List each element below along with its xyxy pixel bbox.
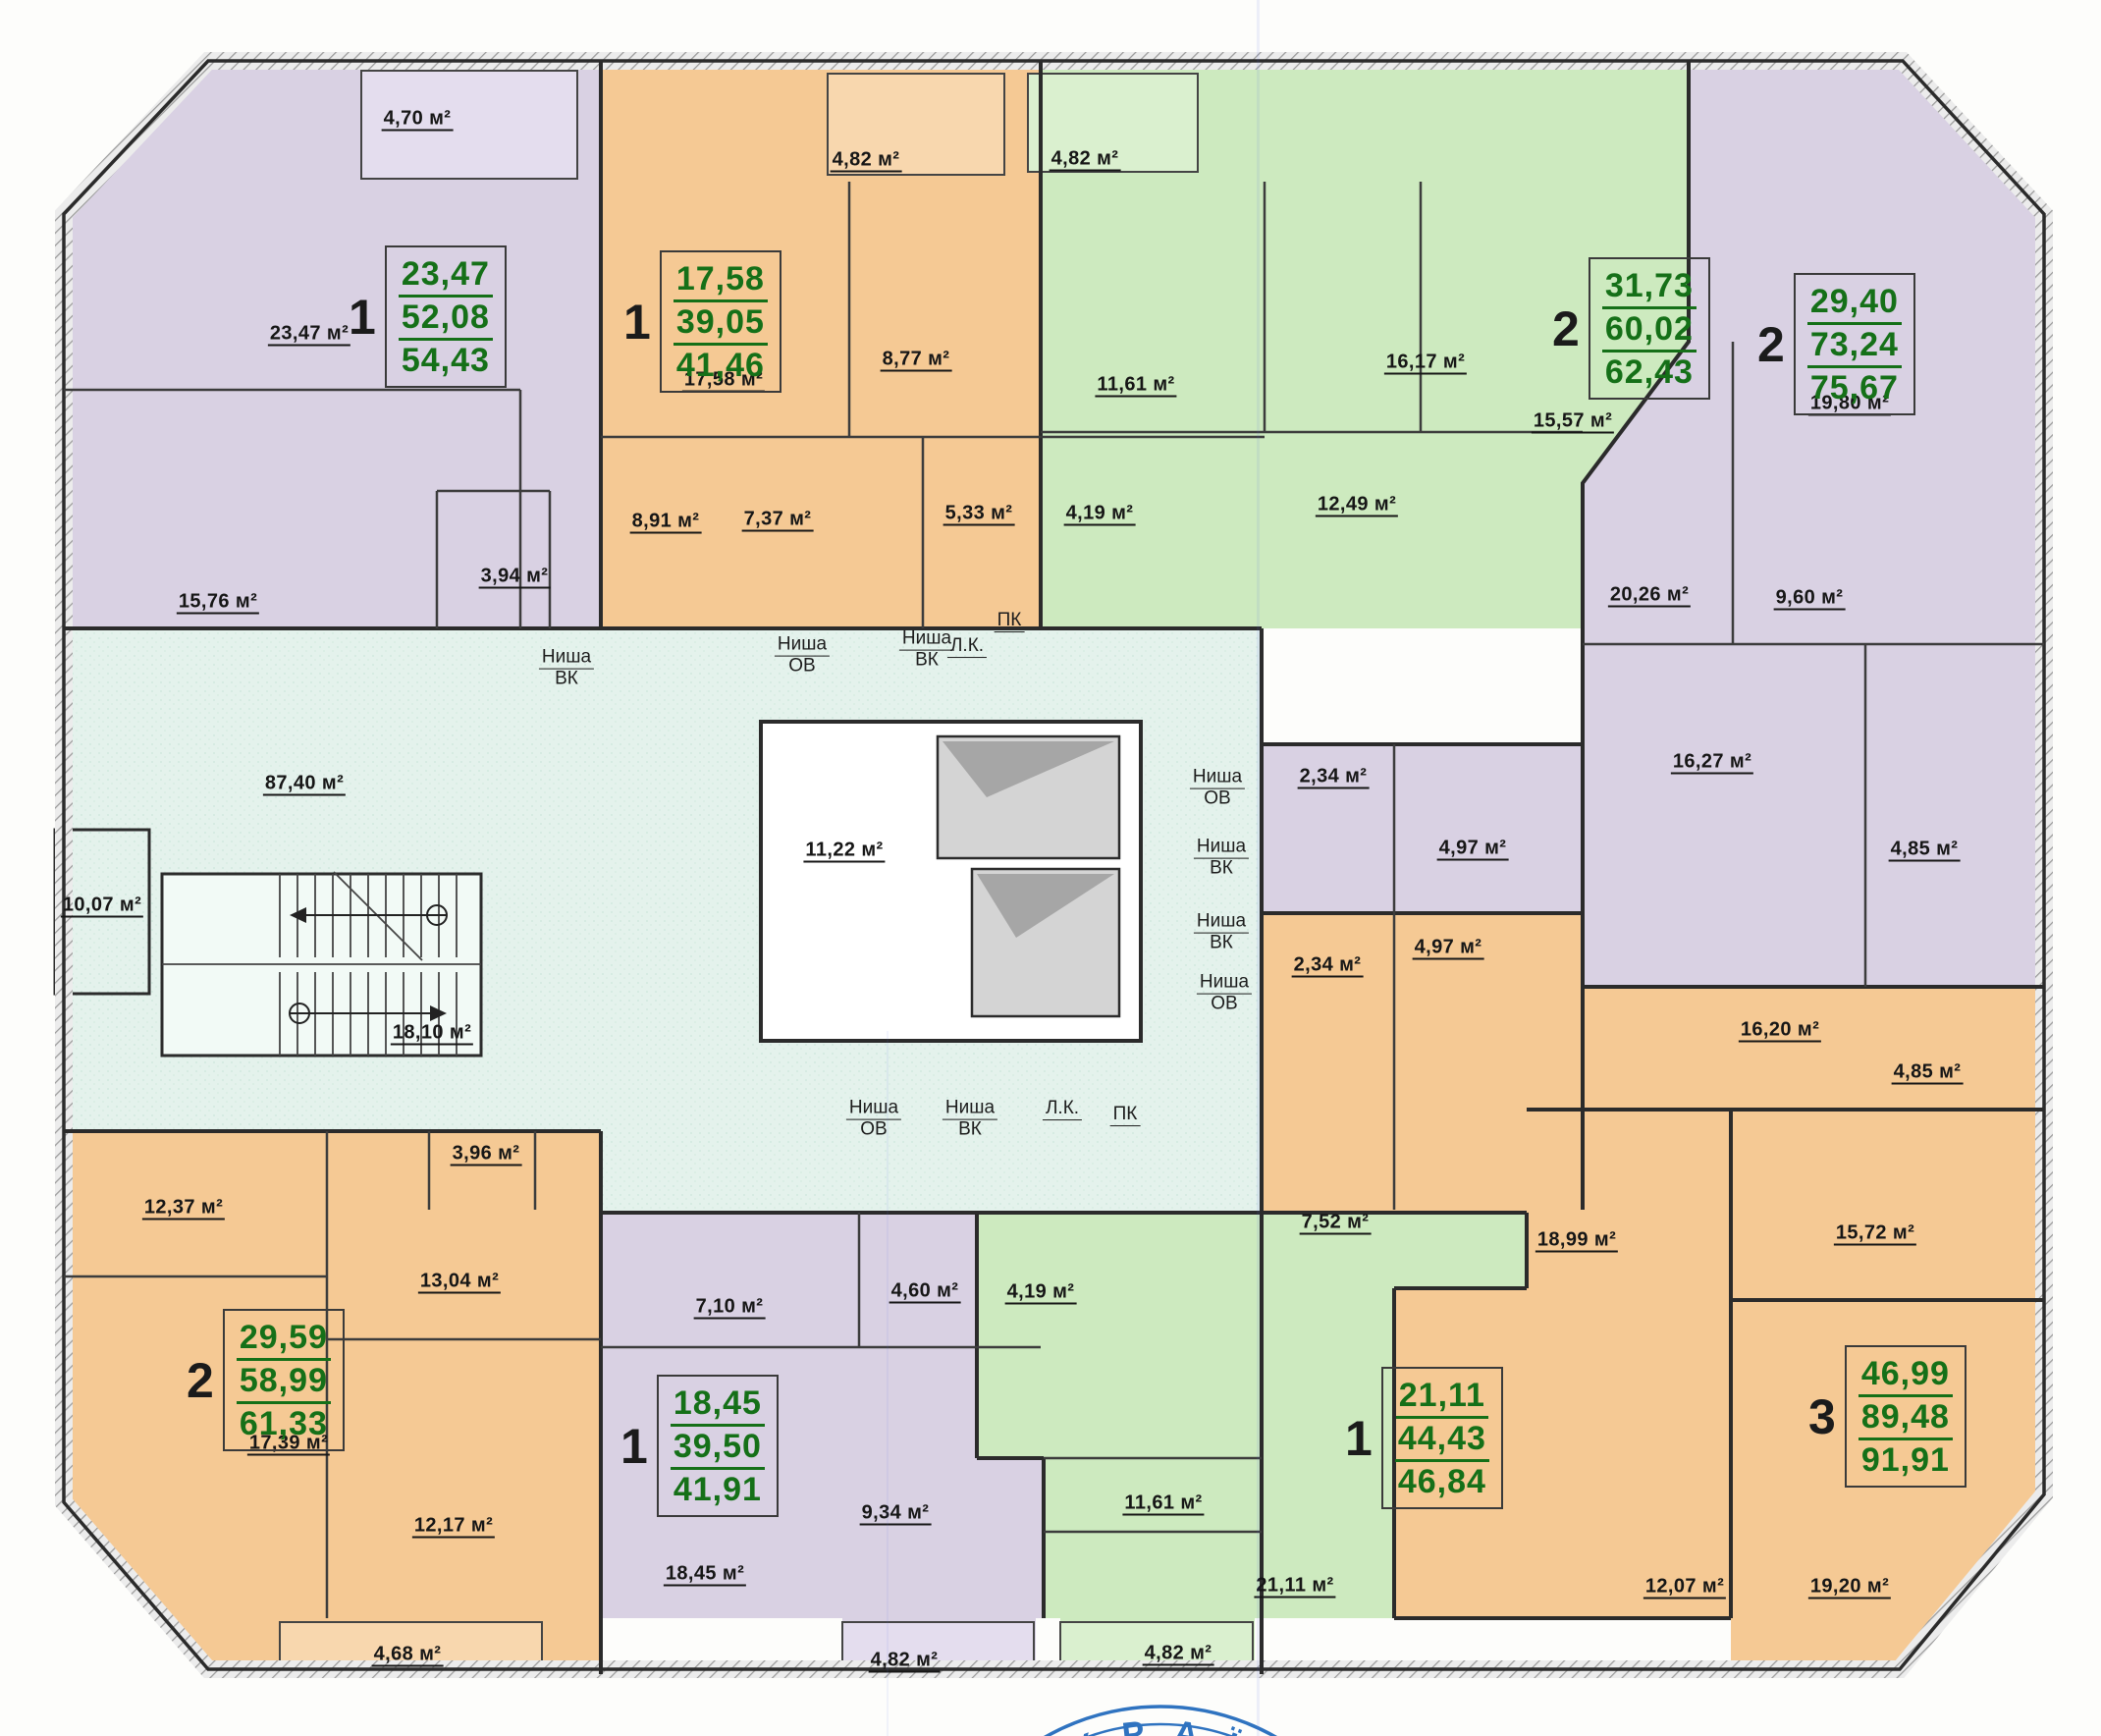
room-area-label: 87,40 м² xyxy=(263,774,346,796)
room-area-label: 12,07 м² xyxy=(1643,1577,1726,1600)
apartment-area: 58,99 xyxy=(237,1361,331,1404)
apartment-areas-box: 18,45 39,50 41,91 xyxy=(657,1375,779,1517)
room-area-label: 16,20 м² xyxy=(1739,1020,1821,1043)
living-area: 29,59 xyxy=(237,1318,331,1361)
room-area-label: 5,33 м² xyxy=(943,504,1015,526)
labels-layer: 4,70 м²23,47 м²15,76 м²3,94 м²8,91 м²17,… xyxy=(0,0,2101,1736)
apartment-areas-box: 21,11 44,43 46,84 xyxy=(1381,1367,1503,1509)
apartment-areas-box: 31,73 60,02 62,43 xyxy=(1589,257,1710,400)
niche-label: НишаВК xyxy=(1194,912,1249,954)
room-area-label: 15,57 м² xyxy=(1532,411,1614,434)
niche-label: Л.К. xyxy=(1043,1099,1082,1120)
room-area-label: 15,76 м² xyxy=(177,592,259,615)
living-area: 21,11 xyxy=(1396,1376,1488,1419)
room-area-label: 16,27 м² xyxy=(1671,752,1753,775)
room-area-label: 18,99 м² xyxy=(1535,1230,1618,1253)
apartment-rooms-count: 2 xyxy=(1757,320,1785,369)
room-area-label: 11,61 м² xyxy=(1122,1493,1204,1516)
room-area-label: 4,97 м² xyxy=(1437,839,1509,861)
room-area-label: 4,68 м² xyxy=(372,1645,444,1667)
niche-label: НишаВК xyxy=(539,648,594,690)
niche-label: НишаОВ xyxy=(1197,973,1252,1015)
room-area-label: 2,34 м² xyxy=(1292,955,1364,978)
living-area: 29,40 xyxy=(1807,282,1902,325)
apartment-info-top-left: 1 23,47 52,08 54,43 xyxy=(349,245,507,388)
room-area-label: 4,19 м² xyxy=(1005,1282,1077,1305)
floor-plan: У К Р А Ї Н 4,70 м²23,47 м²15,76 м²3,94 … xyxy=(0,0,2101,1736)
living-area: 18,45 xyxy=(671,1383,765,1427)
living-area: 17,58 xyxy=(673,259,768,302)
apartment-area: 73,24 xyxy=(1807,325,1902,368)
apartment-info-bottom-green: 1 21,11 44,43 46,84 xyxy=(1345,1367,1503,1509)
room-area-label: 19,20 м² xyxy=(1808,1577,1891,1600)
room-area-label: 4,82 м² xyxy=(1050,149,1121,172)
niche-label: ПК xyxy=(1110,1105,1141,1126)
room-area-label: 4,85 м² xyxy=(1892,1062,1964,1085)
living-area: 23,47 xyxy=(399,254,493,298)
total-area: 61,33 xyxy=(237,1404,331,1444)
niche-label: ПК xyxy=(995,611,1025,632)
room-area-label: 7,37 м² xyxy=(742,510,814,532)
room-area-label: 12,49 м² xyxy=(1316,495,1398,517)
room-area-label: 9,34 м² xyxy=(860,1503,932,1526)
total-area: 91,91 xyxy=(1859,1440,1953,1481)
niche-label: НишаВК xyxy=(943,1099,997,1141)
living-area: 31,73 xyxy=(1602,266,1697,309)
room-area-label: 4,70 м² xyxy=(382,109,454,132)
niche-label: НишаОВ xyxy=(775,635,830,678)
room-area-label: 13,04 м² xyxy=(418,1272,501,1294)
apartment-area: 60,02 xyxy=(1602,309,1697,353)
room-area-label: 8,77 м² xyxy=(881,350,952,372)
apartment-rooms-count: 1 xyxy=(623,298,651,347)
total-area: 62,43 xyxy=(1602,353,1697,393)
apartment-info-right-purple: 2 29,40 73,24 75,67 xyxy=(1757,273,1915,415)
room-area-label: 15,72 м² xyxy=(1834,1223,1916,1246)
apartment-rooms-count: 1 xyxy=(620,1422,648,1471)
apartment-rooms-count: 1 xyxy=(1345,1414,1373,1463)
room-area-label: 12,17 м² xyxy=(412,1516,495,1539)
room-area-label: 7,52 м² xyxy=(1300,1213,1372,1235)
room-area-label: 20,26 м² xyxy=(1608,585,1691,608)
living-area: 46,99 xyxy=(1859,1354,1953,1397)
apartment-area: 89,48 xyxy=(1859,1397,1953,1440)
niche-label: Л.К. xyxy=(947,636,987,658)
room-area-label: 23,47 м² xyxy=(268,324,350,347)
apartment-area: 39,50 xyxy=(671,1427,765,1470)
apartment-areas-box: 46,99 89,48 91,91 xyxy=(1845,1345,1966,1488)
apartment-rooms-count: 2 xyxy=(187,1356,214,1405)
apartment-areas-box: 23,47 52,08 54,43 xyxy=(385,245,507,388)
niche-label: НишаОВ xyxy=(1190,768,1245,810)
apartment-area: 39,05 xyxy=(673,302,768,346)
room-area-label: 11,61 м² xyxy=(1095,375,1176,398)
room-area-label: 11,22 м² xyxy=(803,841,885,863)
apartment-area: 52,08 xyxy=(399,298,493,341)
room-area-label: 2,34 м² xyxy=(1298,767,1370,789)
room-area-label: 18,10 м² xyxy=(391,1023,473,1046)
room-area-label: 8,91 м² xyxy=(630,512,702,534)
apartment-info-top-green: 2 31,73 60,02 62,43 xyxy=(1552,257,1710,400)
apartment-area: 44,43 xyxy=(1395,1419,1489,1462)
room-area-label: 4,82 м² xyxy=(869,1651,941,1673)
total-area: 54,43 xyxy=(399,341,493,381)
total-area: 75,67 xyxy=(1807,368,1902,408)
room-area-label: 18,45 м² xyxy=(664,1564,746,1587)
niche-label: НишаВК xyxy=(899,629,954,672)
apartment-info-bottom-purple: 1 18,45 39,50 41,91 xyxy=(620,1375,779,1517)
apartment-info-bottom-right-orange: 3 46,99 89,48 91,91 xyxy=(1808,1345,1966,1488)
room-area-label: 4,60 м² xyxy=(889,1281,961,1304)
niche-label: НишаВК xyxy=(1194,838,1249,880)
room-area-label: 7,10 м² xyxy=(694,1297,766,1320)
niche-label: НишаОВ xyxy=(846,1099,901,1141)
room-area-label: 12,37 м² xyxy=(142,1198,225,1221)
total-area: 41,91 xyxy=(671,1470,765,1510)
room-area-label: 21,11 м² xyxy=(1254,1576,1335,1599)
apartment-areas-box: 29,40 73,24 75,67 xyxy=(1794,273,1915,415)
total-area: 41,46 xyxy=(673,346,768,386)
room-area-label: 9,60 м² xyxy=(1774,588,1846,611)
apartment-rooms-count: 3 xyxy=(1808,1392,1836,1441)
apartment-info-top-orange: 1 17,58 39,05 41,46 xyxy=(623,250,781,393)
room-area-label: 16,17 м² xyxy=(1384,353,1467,375)
room-area-label: 3,94 м² xyxy=(479,567,551,589)
room-area-label: 3,96 м² xyxy=(451,1144,522,1166)
room-area-label: 4,82 м² xyxy=(1143,1644,1214,1666)
apartment-rooms-count: 1 xyxy=(349,293,376,342)
apartment-rooms-count: 2 xyxy=(1552,304,1580,353)
room-area-label: 10,07 м² xyxy=(61,895,143,918)
apartment-areas-box: 29,59 58,99 61,33 xyxy=(223,1309,345,1451)
apartment-areas-box: 17,58 39,05 41,46 xyxy=(660,250,781,393)
total-area: 46,84 xyxy=(1395,1462,1489,1502)
room-area-label: 4,97 м² xyxy=(1413,938,1484,960)
apartment-info-bottom-left-orange: 2 29,59 58,99 61,33 xyxy=(187,1309,345,1451)
room-area-label: 4,19 м² xyxy=(1064,504,1136,526)
room-area-label: 4,85 м² xyxy=(1889,840,1961,862)
room-area-label: 4,82 м² xyxy=(831,150,902,173)
